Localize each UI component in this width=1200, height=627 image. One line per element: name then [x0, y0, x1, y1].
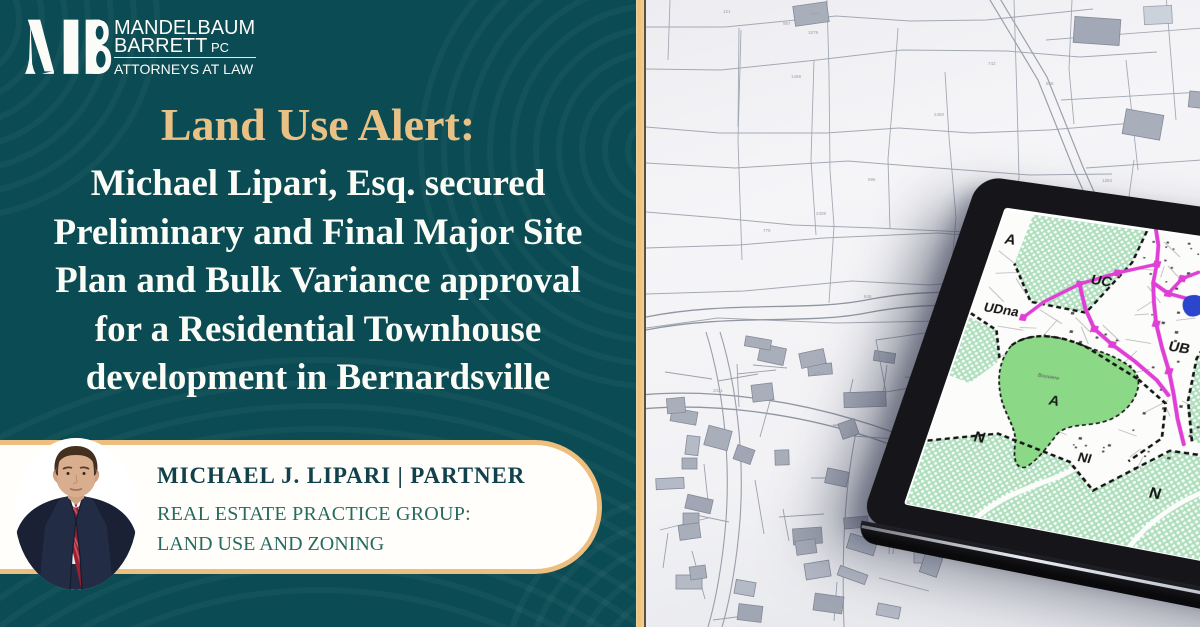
svg-text:1284: 1284 — [1102, 178, 1113, 183]
svg-text:987: 987 — [783, 21, 791, 26]
svg-text:779: 779 — [763, 228, 771, 233]
svg-text:1459: 1459 — [791, 74, 802, 79]
svg-text:2450: 2450 — [934, 112, 945, 117]
svg-text:2021: 2021 — [713, 388, 724, 393]
svg-text:668: 668 — [1046, 81, 1054, 86]
svg-text:742: 742 — [988, 61, 996, 66]
svg-text:696: 696 — [868, 177, 876, 182]
svg-text:1353: 1353 — [814, 371, 825, 376]
svg-text:2541: 2541 — [810, 11, 821, 16]
svg-text:2308: 2308 — [816, 211, 827, 216]
svg-text:121: 121 — [723, 9, 731, 14]
svg-text:1579: 1579 — [808, 30, 819, 35]
svg-text:845: 845 — [864, 294, 872, 299]
